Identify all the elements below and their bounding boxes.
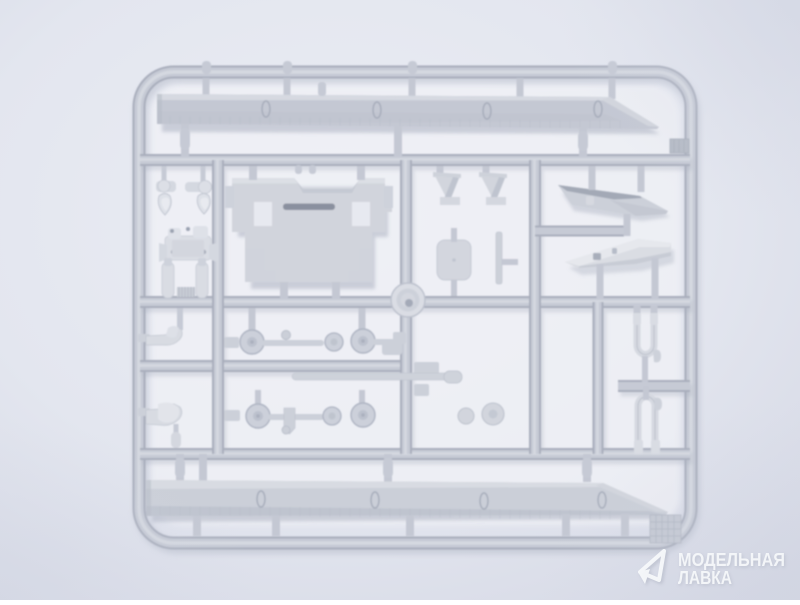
svg-text:ЛАВКА: ЛАВКА (678, 568, 732, 588)
svg-text:МОДЕЛЬНАЯ: МОДЕЛЬНАЯ (678, 550, 785, 570)
